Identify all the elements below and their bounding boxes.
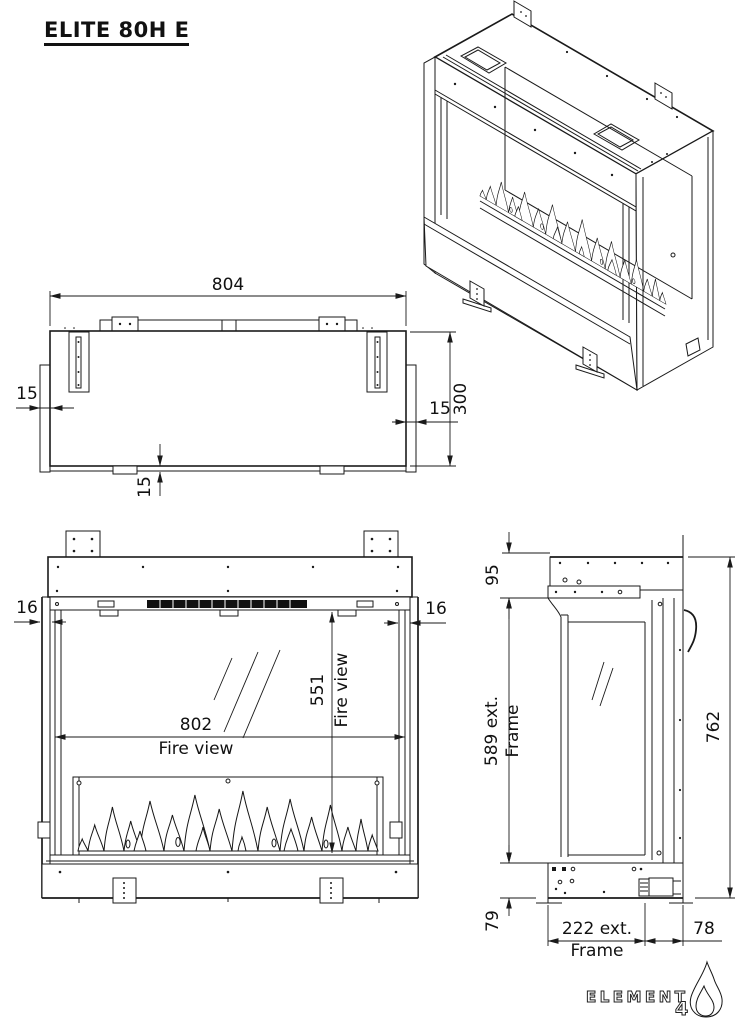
- dimension-label-fire-height: 551: [308, 674, 328, 706]
- dim-fire-width: 802 Fire view: [55, 715, 405, 759]
- dimension-label-frame-depth: 222 ext.: [562, 919, 632, 939]
- dim-top-offset: 95: [483, 532, 550, 619]
- dimension-label-frame-right: 16: [425, 599, 447, 619]
- brand-logo: ELEMENT 4: [586, 962, 722, 1020]
- dimension-label-top-depth: 300: [451, 383, 471, 415]
- dim-total-height: 762: [688, 557, 735, 898]
- dimension-caption-fire-width: Fire view: [159, 739, 234, 759]
- front-view: 16 16 802 Fire view 551 Fire view: [14, 531, 447, 903]
- dim-bottom-offset: 79: [483, 845, 536, 932]
- technical-drawing: 804 300 15 15: [0, 0, 736, 1024]
- dim-frame-depth: 222 ext. Frame: [548, 903, 645, 961]
- dimension-caption-frame-depth: Frame: [571, 941, 624, 961]
- dimension-label-flange-bottom: 15: [135, 476, 155, 498]
- dimension-label-top-offset: 95: [483, 564, 503, 586]
- flame-icon: [690, 962, 722, 1017]
- dimension-label-flange-right: 15: [429, 399, 451, 419]
- drawing-page: ELITE 80H E: [0, 0, 736, 1024]
- dim-frame-height: 589 ext. Frame: [482, 598, 548, 863]
- dimension-caption-frame-height: Frame: [503, 705, 523, 758]
- dim-rear-depth: 78: [645, 905, 722, 946]
- dimension-label-total-height: 762: [704, 711, 724, 743]
- brand-number: 4: [675, 998, 688, 1020]
- isometric-view: [424, 1, 713, 390]
- dimension-label-frame-left: 16: [16, 598, 38, 618]
- dimension-label-rear-depth: 78: [693, 919, 715, 939]
- dimension-label-top-width: 804: [212, 275, 244, 295]
- brand-name: ELEMENT: [586, 988, 689, 1006]
- top-view: 804 300 15 15: [16, 275, 471, 498]
- dimension-label-fire-width: 802: [180, 715, 212, 735]
- side-view: 95 589 ext. Frame 79 762: [482, 532, 735, 961]
- dim-top-width: 804: [50, 275, 406, 326]
- dimension-label-bottom-offset: 79: [483, 910, 503, 932]
- dimension-label-frame-height: 589 ext.: [482, 696, 502, 766]
- dimension-label-flange-left: 15: [16, 384, 38, 404]
- dimension-caption-fire-height: Fire view: [332, 652, 352, 727]
